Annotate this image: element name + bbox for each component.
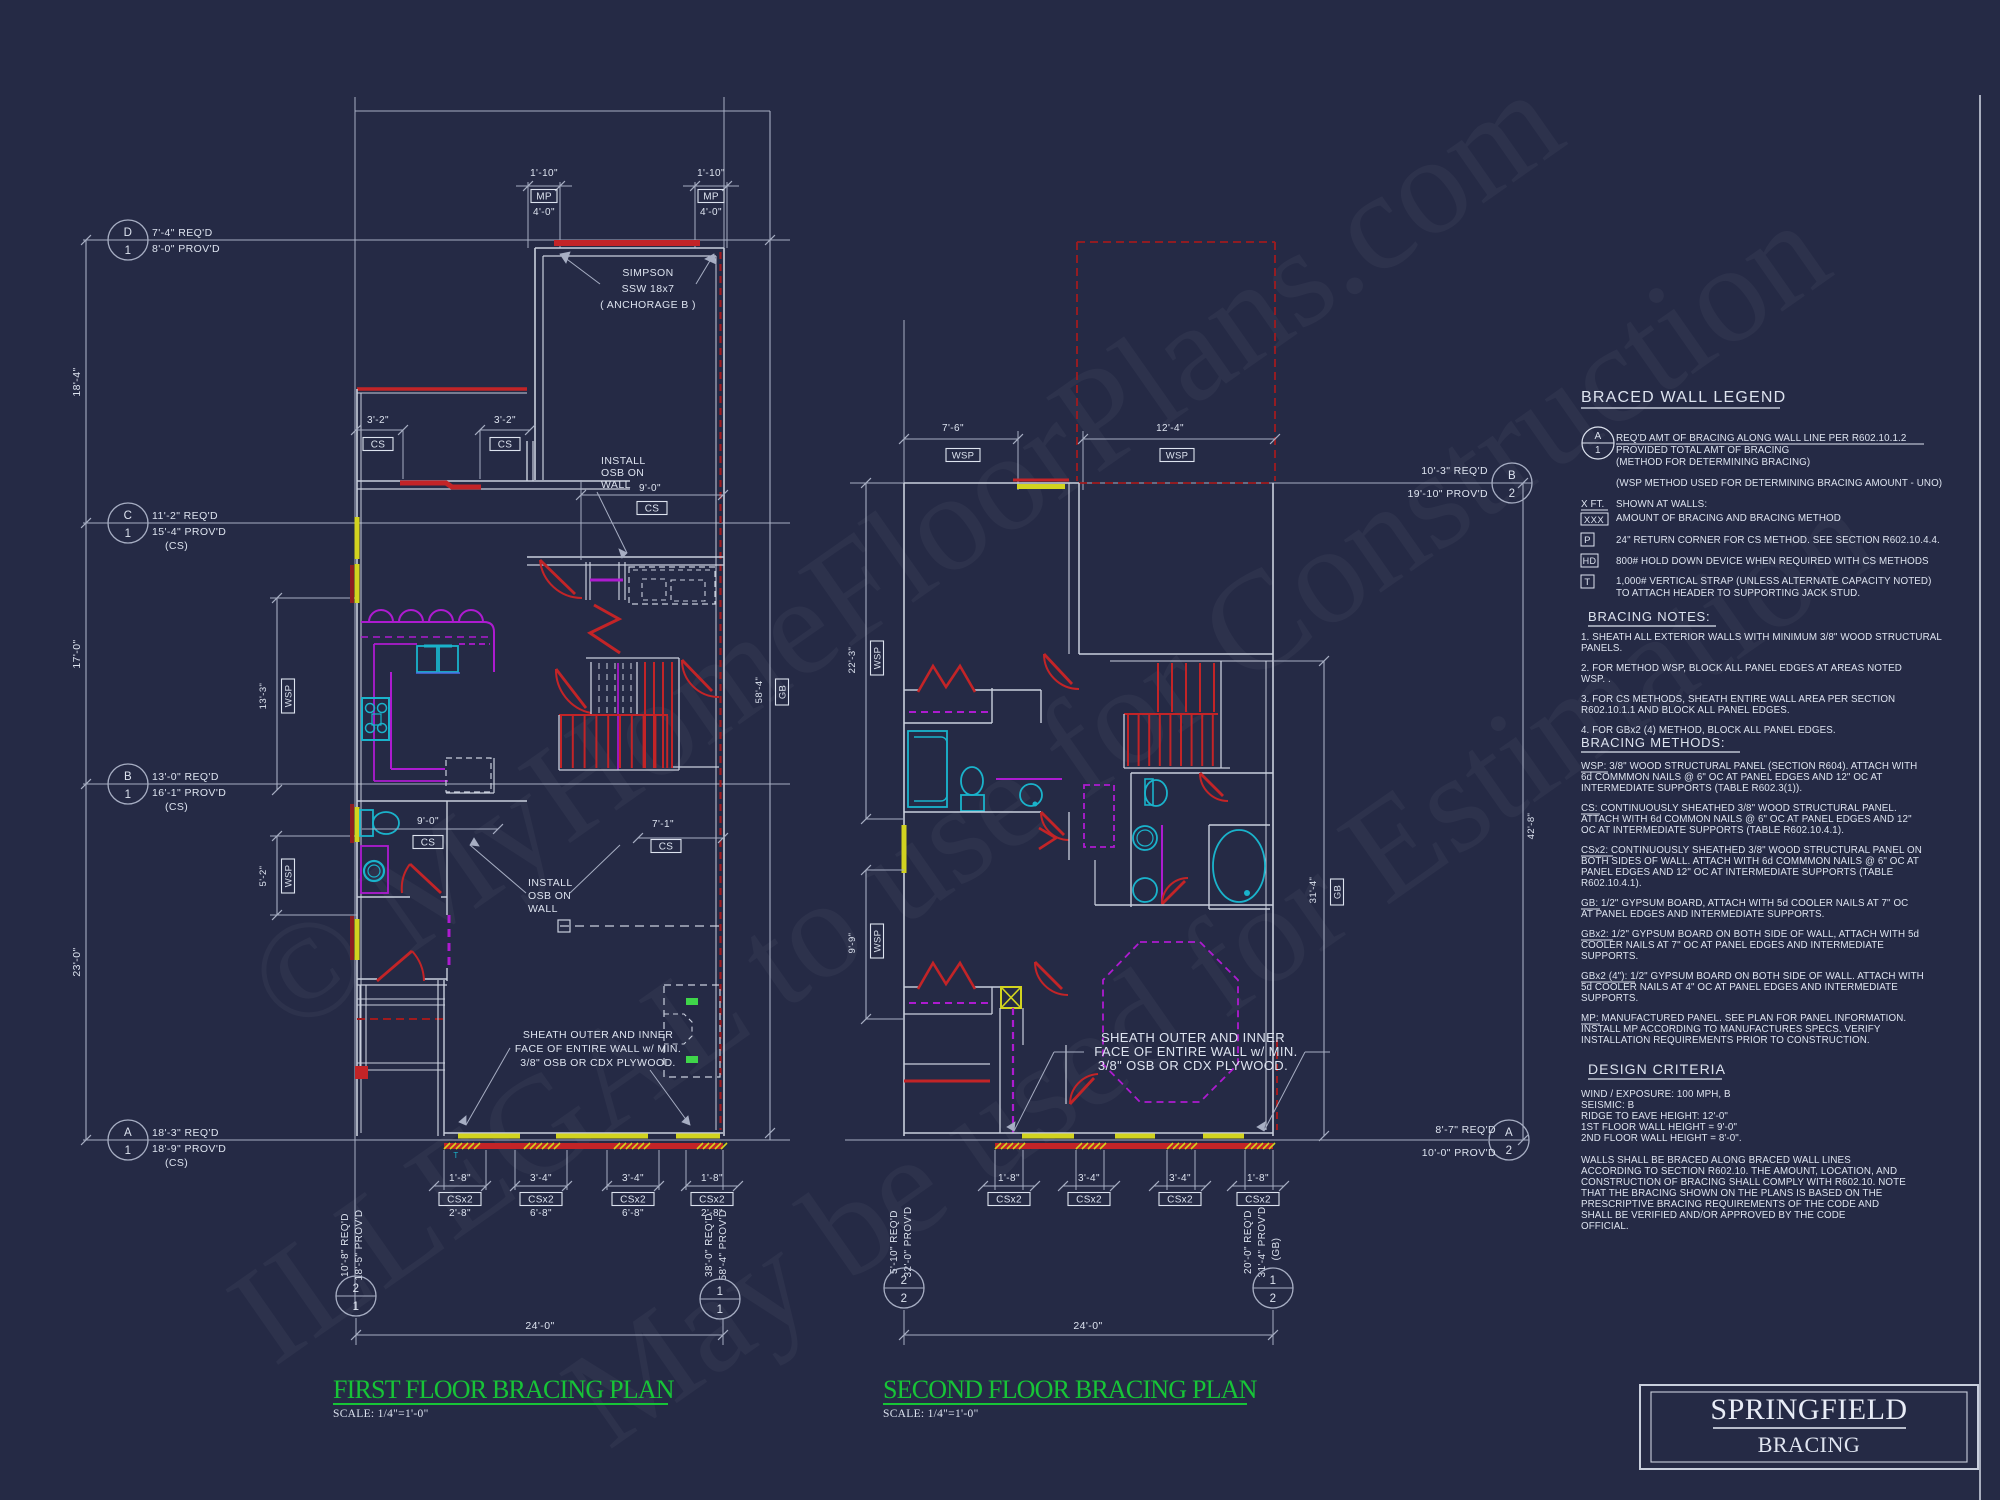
svg-text:SHOWN AT WALLS:: SHOWN AT WALLS: [1616, 499, 1707, 510]
svg-text:MP: MP [536, 192, 552, 203]
svg-text:WALLS SHALL BE BRACED ALONG BR: WALLS SHALL BE BRACED ALONG BRACED WALL … [1581, 1155, 1851, 1166]
svg-text:WSP: WSP [284, 685, 295, 708]
svg-text:CSx2: CSx2 [699, 1195, 725, 1206]
svg-text:ATTACH WITH 6d COMMON NAILS @: ATTACH WITH 6d COMMON NAILS @ 6" OC AT P… [1581, 814, 1912, 825]
svg-text:31'-4" PROV'D: 31'-4" PROV'D [1257, 1207, 1268, 1278]
svg-text:2: 2 [901, 1275, 908, 1287]
svg-text:(CS): (CS) [165, 801, 188, 813]
svg-text:1'-8": 1'-8" [1247, 1173, 1269, 1184]
svg-text:SUPPORTS.: SUPPORTS. [1581, 993, 1638, 1004]
svg-text:32'-0" PROV'D: 32'-0" PROV'D [903, 1207, 914, 1278]
svg-text:CSx2: CSx2 [1245, 1195, 1271, 1206]
svg-text:(GB): (GB) [1271, 1238, 1282, 1261]
svg-text:12'-4": 12'-4" [1156, 423, 1184, 434]
svg-text:2: 2 [353, 1283, 360, 1295]
svg-text:PANELS.: PANELS. [1581, 643, 1622, 654]
svg-text:AT PANEL EDGES AND INTERMEDIAT: AT PANEL EDGES AND INTERMEDIATE SUPPORTS… [1581, 909, 1824, 920]
svg-text:THAT THE BRACING SHOWN ON THE: THAT THE BRACING SHOWN ON THE PLANS IS B… [1581, 1188, 1883, 1199]
svg-text:MP: MP [703, 192, 719, 203]
svg-text:10'-8" REQ'D: 10'-8" REQ'D [340, 1213, 351, 1277]
svg-text:10'-3" REQ'D: 10'-3" REQ'D [1421, 465, 1488, 477]
svg-text:5'-10" REQ'D: 5'-10" REQ'D [889, 1210, 900, 1274]
svg-text:2ND FLOOR WALL HEIGHT = 8'-0".: 2ND FLOOR WALL HEIGHT = 8'-0". [1581, 1133, 1742, 1144]
svg-text:TO ATTACH HEADER TO SUPPORTING: TO ATTACH HEADER TO SUPPORTING JACK STUD… [1616, 588, 1860, 599]
svg-text:2'-8": 2'-8" [449, 1208, 471, 1219]
svg-text:1'-10": 1'-10" [697, 168, 725, 179]
svg-text:WSP: WSP [284, 865, 295, 888]
svg-text:15'-4" PROV'D: 15'-4" PROV'D [152, 526, 226, 538]
svg-text:1'-10": 1'-10" [530, 168, 558, 179]
svg-text:BRACING METHODS:: BRACING METHODS: [1581, 735, 1725, 750]
svg-text:18'-5" PROV'D: 18'-5" PROV'D [354, 1210, 365, 1281]
svg-text:(WSP METHOD USED FOR DETERMINI: (WSP METHOD USED FOR DETERMINING BRACING… [1616, 478, 1942, 489]
svg-text:BRACED WALL LEGEND: BRACED WALL LEGEND [1581, 389, 1786, 406]
svg-text:FACE OF ENTIRE WALL w/ MIN.: FACE OF ENTIRE WALL w/ MIN. [515, 1043, 681, 1055]
svg-text:18'-3" REQ'D: 18'-3" REQ'D [152, 1127, 219, 1139]
svg-text:A: A [1505, 1127, 1513, 1139]
svg-text:OFFICIAL.: OFFICIAL. [1581, 1221, 1629, 1232]
svg-text:8'-0" PROV'D: 8'-0" PROV'D [152, 243, 220, 255]
svg-text:T: T [453, 1151, 458, 1160]
svg-text:6d COMMMON NAILS @ 6" OC AT PA: 6d COMMMON NAILS @ 6" OC AT PANEL EDGES … [1581, 772, 1883, 783]
svg-text:CSx2: CONTINUOUSLY SHEATHED 3/: CSx2: CONTINUOUSLY SHEATHED 3/8" WOOD ST… [1581, 845, 1922, 856]
svg-text:BRACING: BRACING [1758, 1432, 1861, 1457]
svg-text:(CS): (CS) [165, 1157, 188, 1169]
svg-text:3'-2": 3'-2" [494, 415, 516, 426]
svg-text:CS: CS [645, 504, 660, 515]
svg-text:INSTALL MP ACCORDING TO MANUFA: INSTALL MP ACCORDING TO MANUFACTURES SPE… [1581, 1024, 1881, 1035]
svg-text:5d COOLER NAILS AT 4" OC AT PA: 5d COOLER NAILS AT 4" OC AT PANEL EDGES … [1581, 982, 1898, 993]
svg-text:B: B [124, 771, 132, 783]
svg-text:CONSTRUCTION OF BRACING SHALL: CONSTRUCTION OF BRACING SHALL COMPLY WIT… [1581, 1177, 1906, 1188]
svg-text:1,000# VERTICAL STRAP (UNLESS: 1,000# VERTICAL STRAP (UNLESS ALTERNATE … [1616, 576, 1931, 587]
svg-text:(CS): (CS) [165, 540, 188, 552]
svg-text:AMOUNT OF BRACING AND BRACING: AMOUNT OF BRACING AND BRACING METHOD [1616, 513, 1841, 524]
svg-text:GBx2: 1/2" GYPSUM BOARD ON BOT: GBx2: 1/2" GYPSUM BOARD ON BOTH SIDE OF … [1581, 929, 1919, 940]
svg-text:4'-0": 4'-0" [533, 207, 555, 218]
svg-text:GB: 1/2" GYPSUM BOARD, ATTACH: GB: 1/2" GYPSUM BOARD, ATTACH WITH 5d CO… [1581, 898, 1908, 909]
svg-text:( ANCHORAGE B ): ( ANCHORAGE B ) [600, 299, 696, 311]
svg-text:42'-8": 42'-8" [1526, 813, 1537, 840]
svg-text:10'-0" PROV'D: 10'-0" PROV'D [1422, 1147, 1496, 1159]
svg-text:SHEATH OUTER AND INNER: SHEATH OUTER AND INNER [1101, 1030, 1285, 1045]
svg-text:CS: CS [659, 842, 674, 853]
svg-text:7'-1": 7'-1" [652, 819, 674, 830]
svg-text:OSB ON: OSB ON [601, 467, 644, 479]
svg-text:1: 1 [125, 1145, 132, 1157]
svg-text:7'-6": 7'-6" [942, 423, 964, 434]
svg-text:22'-3": 22'-3" [847, 647, 858, 674]
svg-text:6'-8": 6'-8" [530, 1208, 552, 1219]
svg-text:WSP: WSP [873, 930, 884, 953]
svg-text:CSx2: CSx2 [528, 1195, 554, 1206]
svg-text:CS: CS [421, 838, 436, 849]
svg-text:1'-8": 1'-8" [449, 1173, 471, 1184]
svg-text:PANEL EDGES AND 12" OC AT INTE: PANEL EDGES AND 12" OC AT INTERMEDIATE S… [1581, 867, 1894, 878]
svg-text:R602.10.4.1).: R602.10.4.1). [1581, 878, 1642, 889]
svg-text:INTERMEDIATE SUPPORTS (TABLE R: INTERMEDIATE SUPPORTS (TABLE R602.3(1)). [1581, 783, 1802, 794]
svg-text:HD: HD [1583, 556, 1597, 566]
svg-text:SCALE: 1/4"=1'-0": SCALE: 1/4"=1'-0" [883, 1408, 979, 1420]
svg-text:(METHOD FOR DETERMINING BRACIN: (METHOD FOR DETERMINING BRACING) [1616, 457, 1810, 468]
svg-text:A: A [1594, 431, 1601, 442]
svg-text:FACE OF ENTIRE WALL w/ MIN.: FACE OF ENTIRE WALL w/ MIN. [1094, 1044, 1297, 1059]
svg-text:3. FOR CS METHODS, SHEATH ENTI: 3. FOR CS METHODS, SHEATH ENTIRE WALL AR… [1581, 694, 1895, 705]
svg-text:9'-0": 9'-0" [417, 816, 439, 827]
svg-text:SHEATH OUTER AND INNER: SHEATH OUTER AND INNER [523, 1029, 673, 1041]
svg-text:2: 2 [901, 1293, 908, 1305]
svg-text:31'-4": 31'-4" [1308, 877, 1319, 904]
svg-text:800# HOLD DOWN DEVICE WHEN REQ: 800# HOLD DOWN DEVICE WHEN REQUIRED WITH… [1616, 556, 1929, 567]
svg-text:23'-0": 23'-0" [71, 947, 83, 976]
svg-text:CS: CS [371, 440, 386, 451]
svg-text:WALL: WALL [528, 903, 558, 915]
svg-text:24'-0": 24'-0" [525, 1320, 554, 1332]
svg-text:7'-4" REQ'D: 7'-4" REQ'D [152, 227, 213, 239]
svg-text:9'-9": 9'-9" [847, 933, 858, 954]
svg-text:18'-4": 18'-4" [71, 367, 83, 396]
svg-text:CSx2: CSx2 [1076, 1195, 1102, 1206]
svg-text:24" RETURN CORNER FOR CS METHO: 24" RETURN CORNER FOR CS METHOD. SEE SEC… [1616, 535, 1940, 546]
svg-text:1: 1 [1595, 445, 1601, 456]
svg-text:2: 2 [1270, 1293, 1277, 1305]
svg-text:D: D [124, 227, 133, 239]
svg-text:BRACING NOTES:: BRACING NOTES: [1588, 609, 1710, 624]
svg-text:WSP: 3/8" WOOD STRUCTURAL PANE: WSP: 3/8" WOOD STRUCTURAL PANEL (SECTION… [1581, 761, 1917, 772]
svg-text:1'-8": 1'-8" [998, 1173, 1020, 1184]
svg-text:SCALE: 1/4"=1'-0": SCALE: 1/4"=1'-0" [333, 1408, 429, 1420]
svg-text:CS: CONTINUOUSLY SHEATHED 3/8": CS: CONTINUOUSLY SHEATHED 3/8" WOOD STRU… [1581, 803, 1897, 814]
svg-text:3/8" OSB OR CDX PLYWOOD.: 3/8" OSB OR CDX PLYWOOD. [520, 1057, 676, 1069]
svg-text:11'-2" REQ'D: 11'-2" REQ'D [152, 510, 218, 522]
svg-text:SUPPORTS.: SUPPORTS. [1581, 951, 1638, 962]
svg-text:REQ'D AMT OF BRACING ALONG WAL: REQ'D AMT OF BRACING ALONG WALL LINE PER… [1616, 433, 1906, 444]
svg-text:3'-4": 3'-4" [622, 1173, 644, 1184]
svg-text:A: A [124, 1127, 132, 1139]
svg-text:8'-7" REQ'D: 8'-7" REQ'D [1435, 1124, 1496, 1136]
svg-text:SECOND FLOOR BRACING PLAN: SECOND FLOOR BRACING PLAN [883, 1375, 1258, 1404]
svg-text:CSx2: CSx2 [1167, 1195, 1193, 1206]
svg-text:19'-10" PROV'D: 19'-10" PROV'D [1408, 488, 1488, 500]
svg-text:6'-8": 6'-8" [622, 1208, 644, 1219]
svg-text:58'-4" PROV'D: 58'-4" PROV'D [718, 1210, 729, 1281]
svg-text:CSx2: CSx2 [620, 1195, 646, 1206]
svg-text:R602.10.1.1 AND BLOCK ALL PANE: R602.10.1.1 AND BLOCK ALL PANEL EDGES. [1581, 705, 1790, 716]
svg-text:COOLER NAILS AT 7" OC AT PANEL: COOLER NAILS AT 7" OC AT PANEL EDGES AND… [1581, 940, 1884, 951]
svg-text:1'-8": 1'-8" [701, 1173, 723, 1184]
svg-text:WSP. .: WSP. . [1581, 674, 1611, 685]
svg-text:P: P [1584, 535, 1591, 546]
svg-text:17'-0": 17'-0" [71, 639, 83, 668]
svg-text:38'-0" REQ'D: 38'-0" REQ'D [704, 1213, 715, 1277]
svg-text:BOTH SIDES OF WALL. ATTACH WIT: BOTH SIDES OF WALL. ATTACH WITH 6d COMMM… [1581, 856, 1919, 867]
svg-text:1: 1 [353, 1301, 360, 1313]
svg-text:9'-0": 9'-0" [639, 483, 661, 494]
svg-text:3'-4": 3'-4" [1169, 1173, 1191, 1184]
svg-text:2: 2 [1509, 488, 1516, 500]
svg-text:24'-0": 24'-0" [1073, 1320, 1102, 1332]
svg-text:CSx2: CSx2 [996, 1195, 1022, 1206]
svg-text:1: 1 [125, 789, 132, 801]
svg-text:WSP: WSP [1166, 451, 1189, 462]
svg-text:DESIGN CRITERIA: DESIGN CRITERIA [1588, 1061, 1726, 1077]
svg-text:1: 1 [125, 245, 132, 257]
svg-text:PRESCRIPTIVE BRACING REQUIREME: PRESCRIPTIVE BRACING REQUIREMENTS OF THE… [1581, 1199, 1879, 1210]
svg-text:OC AT INTERMEDIATE SUPPORTS (T: OC AT INTERMEDIATE SUPPORTS (TABLE R602.… [1581, 825, 1844, 836]
svg-text:18'-9" PROV'D: 18'-9" PROV'D [152, 1143, 226, 1155]
svg-text:SSW 18x7: SSW 18x7 [622, 283, 675, 295]
svg-text:WALL: WALL [601, 479, 631, 491]
svg-text:T: T [1584, 577, 1590, 588]
svg-text:1: 1 [717, 1286, 724, 1298]
svg-text:INSTALL: INSTALL [601, 455, 646, 467]
svg-text:FIRST FLOOR BRACING PLAN: FIRST FLOOR BRACING PLAN [333, 1375, 675, 1404]
svg-text:4'-0": 4'-0" [700, 207, 722, 218]
svg-text:OSB ON: OSB ON [528, 890, 571, 902]
svg-text:GB: GB [778, 685, 789, 699]
svg-text:ACCORDING TO SECTION R602.10.: ACCORDING TO SECTION R602.10. THE AMOUNT… [1581, 1166, 1897, 1177]
svg-text:13'-0" REQ'D: 13'-0" REQ'D [152, 771, 219, 783]
svg-text:MP: MANUFACTURED PANEL. SEE PL: MP: MANUFACTURED PANEL. SEE PLAN FOR PAN… [1581, 1013, 1906, 1024]
svg-text:PROVIDED TOTAL AMT OF BRACING: PROVIDED TOTAL AMT OF BRACING [1616, 445, 1789, 456]
svg-text:X FT.: X FT. [1581, 499, 1604, 510]
svg-text:16'-1" PROV'D: 16'-1" PROV'D [152, 787, 226, 799]
svg-text:1: 1 [1270, 1275, 1277, 1287]
svg-text:INSTALLATION REQUIREMENTS PRIO: INSTALLATION REQUIREMENTS PRIOR TO CONST… [1581, 1035, 1870, 1046]
svg-text:CS: CS [498, 440, 513, 451]
svg-text:1. SHEATH ALL EXTERIOR WALLS W: 1. SHEATH ALL EXTERIOR WALLS WITH MINIMU… [1581, 632, 1942, 643]
svg-text:1: 1 [717, 1304, 724, 1316]
svg-text:WSP: WSP [952, 451, 975, 462]
svg-text:SPRINGFIELD: SPRINGFIELD [1710, 1393, 1907, 1426]
svg-text:SIMPSON: SIMPSON [622, 267, 673, 279]
svg-text:2. FOR METHOD WSP, BLOCK ALL P: 2. FOR METHOD WSP, BLOCK ALL PANEL EDGES… [1581, 663, 1902, 674]
svg-text:SHALL BE VERIFIED AND/OR APPRO: SHALL BE VERIFIED AND/OR APPROVED BY THE… [1581, 1210, 1846, 1221]
svg-text:5'-2": 5'-2" [258, 866, 269, 887]
svg-text:20'-0" REQ'D: 20'-0" REQ'D [1243, 1210, 1254, 1274]
svg-text:WSP: WSP [873, 647, 884, 670]
svg-text:XXX: XXX [1584, 515, 1604, 526]
svg-text:3'-4": 3'-4" [1078, 1173, 1100, 1184]
svg-text:B: B [1508, 470, 1516, 482]
svg-text:C: C [124, 510, 133, 522]
svg-text:58'-4": 58'-4" [754, 677, 765, 704]
svg-text:SEISMIC: B: SEISMIC: B [1581, 1100, 1635, 1111]
svg-text:3'-2": 3'-2" [367, 415, 389, 426]
svg-text:CSx2: CSx2 [447, 1195, 473, 1206]
svg-text:13'-3": 13'-3" [258, 683, 269, 710]
svg-text:3/8" OSB OR CDX PLYWOOD.: 3/8" OSB OR CDX PLYWOOD. [1098, 1058, 1288, 1073]
svg-text:1ST FLOOR WALL HEIGHT = 9'-0": 1ST FLOOR WALL HEIGHT = 9'-0" [1581, 1122, 1737, 1133]
svg-text:RIDGE TO EAVE HEIGHT: 12'-0": RIDGE TO EAVE HEIGHT: 12'-0" [1581, 1111, 1728, 1122]
svg-text:WIND / EXPOSURE: 100 MPH, B: WIND / EXPOSURE: 100 MPH, B [1581, 1089, 1731, 1100]
svg-text:GBx2 (4"): 1/2" GYPSUM BOARD O: GBx2 (4"): 1/2" GYPSUM BOARD ON BOTH SID… [1581, 971, 1924, 982]
svg-text:3'-4": 3'-4" [530, 1173, 552, 1184]
svg-text:2: 2 [1506, 1145, 1513, 1157]
svg-text:1: 1 [125, 528, 132, 540]
svg-text:INSTALL: INSTALL [528, 877, 573, 889]
svg-text:GB: GB [1333, 885, 1344, 899]
